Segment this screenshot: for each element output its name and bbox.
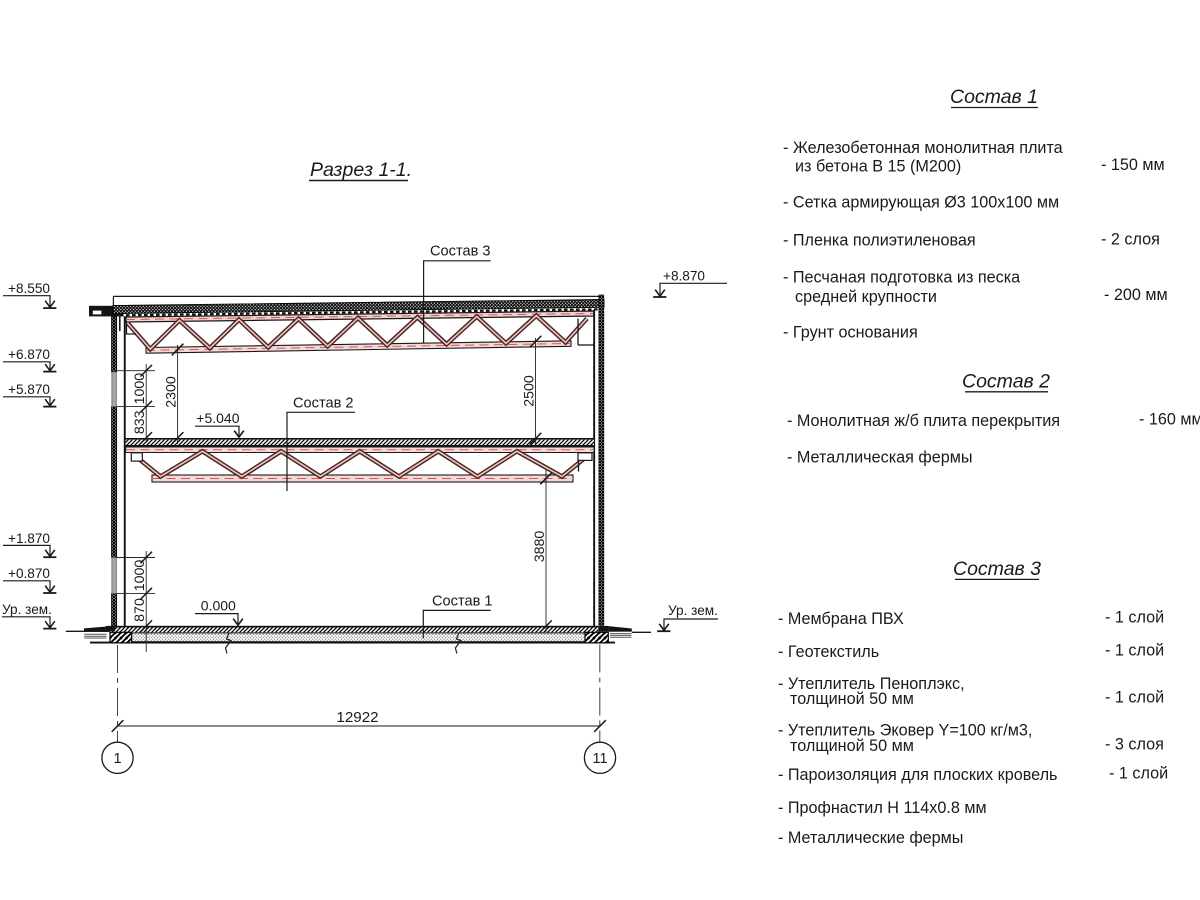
svg-text:- Железобетонная монолитная п: - Железобетонная монолитная плита bbox=[783, 139, 1063, 157]
svg-text:1: 1 bbox=[113, 751, 121, 767]
svg-text:Состав 2: Состав 2 bbox=[962, 370, 1050, 392]
svg-text:толщиной 50 мм: толщиной 50 мм bbox=[790, 690, 914, 708]
svg-text:2300: 2300 bbox=[164, 376, 180, 408]
svg-text:толщиной 50 мм: толщиной 50 мм bbox=[790, 737, 914, 755]
svg-text:870: 870 bbox=[132, 598, 148, 622]
svg-text:+0.870: +0.870 bbox=[8, 566, 50, 581]
svg-text:1000: 1000 bbox=[132, 560, 148, 592]
svg-text:+8.550: +8.550 bbox=[8, 281, 50, 296]
svg-text:- Металлические фермы: - Металлические фермы bbox=[778, 829, 963, 847]
svg-text:+1.870: +1.870 bbox=[8, 531, 50, 546]
svg-text:Состав 3: Состав 3 bbox=[430, 244, 491, 260]
svg-text:- 200 мм: - 200 мм bbox=[1104, 286, 1168, 304]
svg-text:Состав 1: Состав 1 bbox=[432, 594, 493, 610]
svg-text:средней крупности: средней крупности bbox=[795, 288, 937, 306]
svg-text:из бетона В 15 (М200): из бетона В 15 (М200) bbox=[795, 157, 961, 175]
svg-text:+8.870: +8.870 bbox=[663, 269, 705, 284]
svg-text:- 3 слоя: - 3 слоя bbox=[1105, 736, 1164, 754]
svg-text:2500: 2500 bbox=[522, 375, 538, 407]
svg-text:- 1 слой: - 1 слой bbox=[1109, 765, 1168, 783]
svg-text:- Сетка армирующая Ø3 100х100: - Сетка армирующая Ø3 100х100 мм bbox=[783, 193, 1059, 211]
svg-text:- Профнастил Н 114х0.8 мм: - Профнастил Н 114х0.8 мм bbox=[778, 799, 987, 817]
svg-text:+5.870: +5.870 bbox=[8, 382, 50, 397]
svg-text:+5.040: +5.040 bbox=[196, 410, 239, 426]
svg-text:- 1 слой: - 1 слой bbox=[1105, 609, 1164, 627]
svg-text:- Пароизоляция для плоских кро: - Пароизоляция для плоских кровель bbox=[778, 766, 1057, 784]
svg-text:Состав 1: Состав 1 bbox=[950, 86, 1038, 108]
svg-text:0.000: 0.000 bbox=[201, 598, 236, 614]
svg-text:- Монолитная ж/б плита перекры: - Монолитная ж/б плита перекрытия bbox=[787, 412, 1060, 430]
svg-text:Ур. зем.: Ур. зем. bbox=[668, 603, 718, 618]
svg-text:1000: 1000 bbox=[132, 373, 148, 405]
svg-text:- 1 слой: - 1 слой bbox=[1105, 642, 1164, 660]
svg-text:- Грунт основания: - Грунт основания bbox=[783, 324, 918, 342]
svg-text:- Песчаная подготовка из песка: - Песчаная подготовка из песка bbox=[783, 269, 1020, 287]
svg-text:Разрез 1-1.: Разрез 1-1. bbox=[310, 159, 412, 181]
svg-text:- Металлическая фермы: - Металлическая фермы bbox=[787, 449, 973, 467]
svg-text:- 160 мм: - 160 мм bbox=[1139, 411, 1200, 429]
svg-text:- Геотекстиль: - Геотекстиль bbox=[778, 643, 879, 661]
svg-text:833: 833 bbox=[132, 410, 148, 434]
svg-text:- Мембрана ПВХ: - Мембрана ПВХ bbox=[778, 610, 904, 628]
svg-text:3880: 3880 bbox=[532, 531, 548, 563]
svg-text:- 2 слоя: - 2 слоя bbox=[1101, 231, 1160, 249]
svg-text:- Пленка полиэтиленовая: - Пленка полиэтиленовая bbox=[783, 232, 976, 250]
svg-text:- 1 слой: - 1 слой bbox=[1105, 689, 1164, 707]
svg-text:11: 11 bbox=[592, 751, 607, 767]
svg-text:12922: 12922 bbox=[336, 709, 378, 726]
svg-text:Ур. зем.: Ур. зем. bbox=[2, 602, 52, 617]
svg-text:Состав 3: Состав 3 bbox=[953, 558, 1041, 580]
svg-text:- 150 мм: - 150 мм bbox=[1101, 156, 1165, 174]
svg-text:Состав 2: Состав 2 bbox=[293, 396, 354, 412]
svg-text:+6.870: +6.870 bbox=[8, 347, 50, 362]
